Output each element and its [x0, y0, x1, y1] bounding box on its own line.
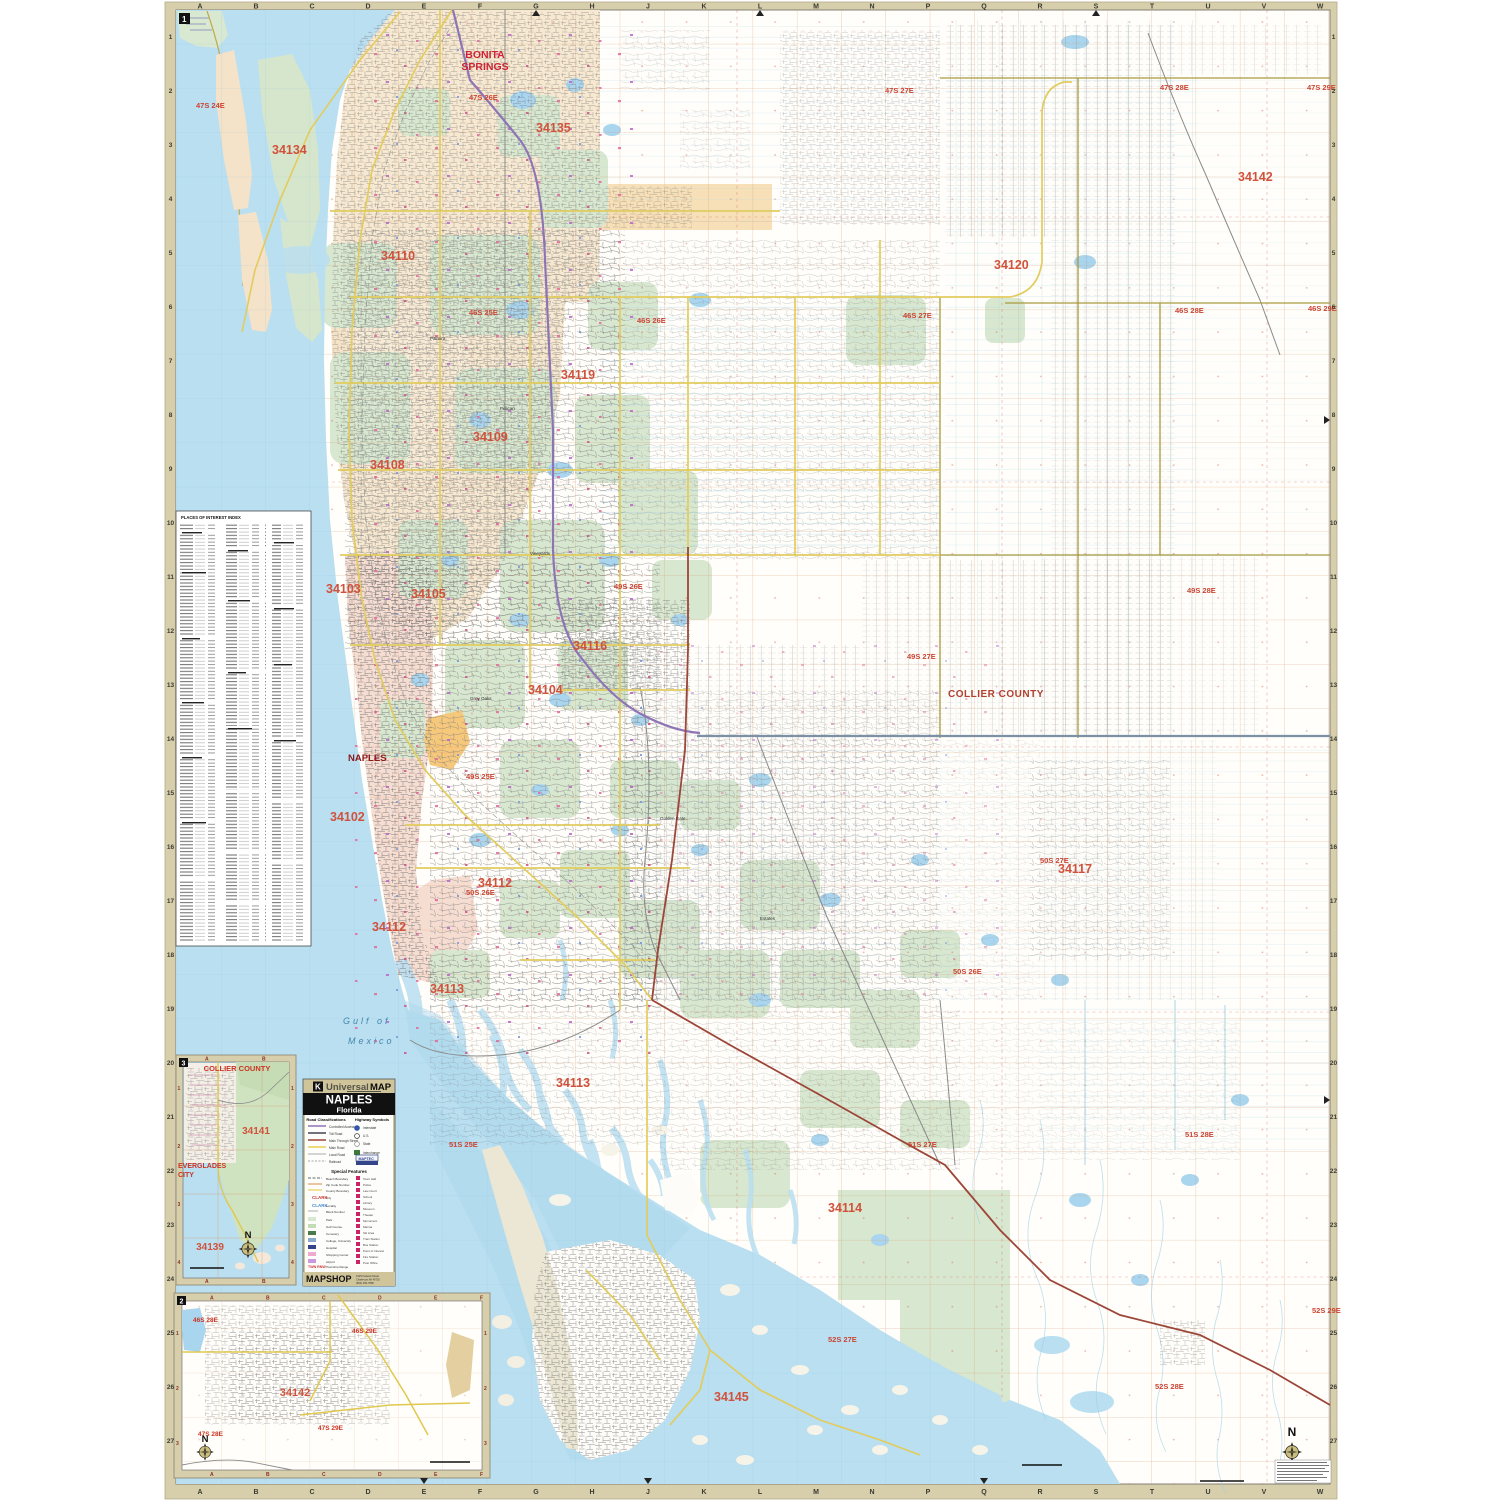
- svg-text:P: P: [926, 4, 931, 11]
- svg-text:College, University: College, University: [326, 1239, 352, 1243]
- svg-text:Golden Gate: Golden Gate: [660, 816, 686, 821]
- svg-text:Pelican: Pelican: [500, 406, 515, 411]
- svg-text:G: G: [533, 1489, 539, 1496]
- svg-text:17: 17: [1330, 898, 1338, 905]
- svg-text:27: 27: [167, 1438, 175, 1445]
- svg-text:34141: 34141: [242, 1126, 270, 1137]
- svg-text:D: D: [378, 1472, 382, 1478]
- svg-text:2: 2: [169, 88, 173, 95]
- svg-text:V: V: [1262, 4, 1267, 11]
- svg-text:47S 28E: 47S 28E: [1160, 83, 1189, 92]
- svg-text:12: 12: [1330, 628, 1338, 635]
- svg-text:34145: 34145: [714, 1390, 749, 1404]
- svg-text:N: N: [869, 4, 874, 11]
- svg-text:34135: 34135: [536, 121, 571, 135]
- svg-text:3: 3: [176, 1441, 179, 1447]
- svg-text:COLLIER COUNTY: COLLIER COUNTY: [948, 689, 1044, 700]
- svg-text:3: 3: [291, 1202, 294, 1208]
- svg-text:2: 2: [176, 1386, 179, 1392]
- svg-text:12: 12: [167, 628, 175, 635]
- svg-text:1: 1: [176, 1331, 179, 1337]
- svg-text:26: 26: [167, 1384, 175, 1391]
- svg-text:Interchange: Interchange: [363, 1151, 380, 1155]
- svg-text:52S 29E: 52S 29E: [1312, 1306, 1341, 1315]
- svg-text:W: W: [1317, 1489, 1324, 1496]
- svg-text:Controlled Access: Controlled Access: [329, 1125, 355, 1129]
- svg-text:20: 20: [1330, 1060, 1338, 1067]
- svg-text:2: 2: [484, 1386, 487, 1392]
- svg-text:B: B: [253, 1489, 258, 1496]
- svg-text:5: 5: [169, 250, 173, 257]
- svg-text:School: School: [363, 1195, 373, 1199]
- svg-text:Grey Oaks: Grey Oaks: [470, 696, 492, 701]
- svg-text:Block Number: Block Number: [326, 1210, 345, 1214]
- svg-text:Police: Police: [363, 1183, 372, 1187]
- svg-text:27: 27: [1330, 1438, 1338, 1445]
- svg-text:U.S.: U.S.: [363, 1134, 369, 1138]
- svg-text:3: 3: [169, 142, 173, 149]
- svg-text:EVERGLADES: EVERGLADES: [178, 1163, 227, 1170]
- svg-text:N: N: [1288, 1425, 1297, 1439]
- svg-text:24: 24: [167, 1276, 175, 1283]
- svg-text:F: F: [478, 4, 483, 11]
- svg-text:46S 28E: 46S 28E: [1175, 306, 1204, 315]
- svg-text:1: 1: [182, 15, 187, 24]
- svg-text:14: 14: [167, 736, 175, 743]
- svg-text:F: F: [480, 1472, 483, 1478]
- svg-text:B: B: [262, 1057, 266, 1063]
- svg-text:Interstate: Interstate: [363, 1126, 377, 1130]
- svg-text:Park: Park: [326, 1218, 333, 1222]
- svg-text:20: 20: [167, 1060, 175, 1067]
- svg-text:Gulf of: Gulf of: [343, 1016, 391, 1026]
- svg-text:2: 2: [291, 1144, 294, 1150]
- svg-text:Special Features: Special Features: [331, 1169, 367, 1174]
- svg-text:N: N: [245, 1230, 252, 1241]
- svg-text:4: 4: [291, 1260, 294, 1266]
- svg-text:49S 26E: 49S 26E: [614, 582, 643, 591]
- svg-text:Post Office: Post Office: [363, 1261, 378, 1265]
- svg-text:A: A: [197, 4, 202, 11]
- svg-text:Toll Road: Toll Road: [329, 1132, 343, 1136]
- svg-text:3: 3: [182, 1061, 186, 1068]
- svg-text:C: C: [322, 1296, 326, 1302]
- svg-text:10: 10: [1330, 520, 1338, 527]
- svg-text:1: 1: [178, 1086, 181, 1092]
- svg-text:Marina: Marina: [363, 1225, 373, 1229]
- svg-text:50S 27E: 50S 27E: [1040, 856, 1069, 865]
- svg-text:Main Road: Main Road: [329, 1146, 345, 1150]
- svg-text:11: 11: [167, 574, 174, 581]
- svg-text:Road Classifications: Road Classifications: [306, 1117, 346, 1122]
- svg-text:15: 15: [1330, 790, 1338, 797]
- svg-text:Q: Q: [981, 1489, 987, 1496]
- svg-text:Locality: Locality: [326, 1204, 337, 1208]
- svg-text:47S 26E: 47S 26E: [469, 93, 498, 102]
- svg-text:A: A: [210, 1472, 214, 1478]
- svg-text:N: N: [202, 1434, 209, 1445]
- svg-text:K: K: [701, 1489, 706, 1496]
- svg-text:13: 13: [167, 682, 175, 689]
- svg-text:NAPLES: NAPLES: [348, 753, 387, 764]
- svg-text:1: 1: [484, 1331, 487, 1337]
- svg-text:B: B: [262, 1279, 266, 1285]
- svg-text:3: 3: [1332, 142, 1336, 149]
- svg-text:A: A: [205, 1279, 209, 1285]
- svg-text:J: J: [646, 1489, 650, 1496]
- svg-text:50S 26E: 50S 26E: [466, 888, 495, 897]
- svg-text:Highway Symbols: Highway Symbols: [355, 1117, 390, 1122]
- svg-text:Theater: Theater: [363, 1213, 373, 1217]
- svg-text:46S 28E: 46S 28E: [193, 1317, 219, 1324]
- svg-text:23: 23: [167, 1222, 175, 1229]
- svg-text:6: 6: [169, 304, 173, 311]
- svg-text:51S 28E: 51S 28E: [1185, 1130, 1214, 1139]
- svg-text:W: W: [1317, 4, 1324, 11]
- svg-text:34108: 34108: [370, 458, 405, 472]
- svg-text:47S 24E: 47S 24E: [196, 101, 225, 110]
- svg-text:46S 26E: 46S 26E: [637, 316, 666, 325]
- svg-text:MAPTEC: MAPTEC: [359, 1157, 375, 1161]
- svg-text:Township Range: Township Range: [326, 1265, 349, 1269]
- svg-text:M: M: [813, 1489, 819, 1496]
- svg-text:34113: 34113: [556, 1076, 590, 1090]
- svg-text:16: 16: [167, 844, 175, 851]
- svg-text:11: 11: [1330, 574, 1337, 581]
- svg-text:4: 4: [1332, 196, 1336, 203]
- svg-text:25: 25: [167, 1330, 175, 1337]
- svg-text:K: K: [315, 1083, 321, 1092]
- svg-text:SPRINGS: SPRINGS: [461, 61, 508, 73]
- svg-text:21: 21: [167, 1114, 175, 1121]
- svg-text:P: P: [926, 1489, 931, 1496]
- svg-text:18: 18: [167, 952, 175, 959]
- svg-text:E: E: [422, 4, 427, 11]
- svg-text:52S 28E: 52S 28E: [1155, 1382, 1184, 1391]
- svg-text:7: 7: [169, 358, 173, 365]
- svg-text:9: 9: [169, 466, 173, 473]
- svg-text:V: V: [1262, 1489, 1267, 1496]
- svg-text:Golf Course: Golf Course: [326, 1225, 342, 1229]
- svg-text:D: D: [365, 4, 370, 11]
- svg-text:S: S: [1094, 1489, 1099, 1496]
- svg-text:H: H: [589, 4, 594, 11]
- svg-text:S: S: [1094, 4, 1099, 11]
- svg-text:3: 3: [484, 1441, 487, 1447]
- svg-text:Mexico: Mexico: [348, 1036, 395, 1046]
- svg-text:Q: Q: [981, 4, 987, 11]
- svg-text:Hospital: Hospital: [326, 1246, 337, 1250]
- svg-text:49S 27E: 49S 27E: [907, 652, 936, 661]
- svg-text:5: 5: [1332, 250, 1336, 257]
- svg-text:E: E: [422, 1489, 427, 1496]
- svg-text:Shopping Center: Shopping Center: [326, 1253, 349, 1257]
- svg-text:H: H: [589, 1489, 594, 1496]
- svg-text:(800) 456-7898: (800) 456-7898: [356, 1281, 374, 1285]
- svg-text:M: M: [813, 4, 819, 11]
- svg-text:L: L: [758, 1489, 763, 1496]
- svg-text:1: 1: [1332, 34, 1336, 41]
- svg-text:18: 18: [1330, 952, 1338, 959]
- svg-text:19: 19: [1330, 1006, 1338, 1013]
- svg-text:10: 10: [167, 520, 175, 527]
- svg-text:34139: 34139: [196, 1242, 224, 1253]
- svg-text:47S 29E: 47S 29E: [318, 1425, 344, 1432]
- svg-text:State: State: [363, 1142, 371, 1146]
- svg-text:49S 28E: 49S 28E: [1187, 586, 1216, 595]
- svg-text:15: 15: [167, 790, 175, 797]
- svg-text:34114: 34114: [828, 1201, 862, 1215]
- svg-text:TWN RNW: TWN RNW: [308, 1265, 326, 1269]
- svg-text:34119: 34119: [561, 368, 595, 382]
- svg-text:Library: Library: [363, 1201, 373, 1205]
- svg-text:9: 9: [1332, 466, 1336, 473]
- svg-text:D: D: [365, 1489, 370, 1496]
- svg-text:34110: 34110: [381, 249, 415, 263]
- svg-text:Charlevoix MI 49720: Charlevoix MI 49720: [356, 1278, 380, 1282]
- svg-text:51S 27E: 51S 27E: [908, 1140, 937, 1149]
- svg-text:34112: 34112: [372, 920, 406, 934]
- svg-text:Monument: Monument: [363, 1219, 377, 1223]
- svg-text:4: 4: [178, 1260, 181, 1266]
- svg-text:A: A: [197, 1489, 202, 1496]
- svg-text:Main Through Street: Main Through Street: [329, 1139, 358, 1143]
- svg-text:34113: 34113: [430, 982, 464, 996]
- svg-text:Fire Station: Fire Station: [363, 1255, 379, 1259]
- svg-text:34103: 34103: [326, 582, 361, 596]
- svg-text:CITY: CITY: [178, 1172, 194, 1179]
- svg-text:T: T: [1150, 4, 1155, 11]
- svg-text:17: 17: [167, 898, 175, 905]
- svg-text:2: 2: [180, 1299, 184, 1306]
- svg-text:34142: 34142: [280, 1387, 311, 1399]
- svg-text:34105: 34105: [411, 587, 446, 601]
- svg-text:BONITA: BONITA: [465, 49, 505, 61]
- svg-text:Ski Area: Ski Area: [363, 1231, 375, 1235]
- svg-text:COLLIER COUNTY: COLLIER COUNTY: [204, 1064, 271, 1073]
- svg-text:8: 8: [169, 412, 173, 419]
- svg-text:Local Road: Local Road: [329, 1153, 345, 1157]
- svg-text:County Boundary: County Boundary: [326, 1189, 350, 1193]
- svg-text:4: 4: [169, 196, 173, 203]
- svg-text:24: 24: [1330, 1276, 1338, 1283]
- svg-text:51S 25E: 51S 25E: [449, 1140, 478, 1149]
- svg-text:23: 23: [1330, 1222, 1338, 1229]
- svg-text:3: 3: [178, 1202, 181, 1208]
- svg-text:Cemetery: Cemetery: [326, 1232, 340, 1236]
- svg-text:F: F: [480, 1296, 483, 1302]
- svg-text:22: 22: [167, 1168, 175, 1175]
- svg-text:8: 8: [1332, 412, 1336, 419]
- svg-text:Beach Boundary: Beach Boundary: [326, 1177, 349, 1181]
- svg-text:MAPSHOP: MAPSHOP: [306, 1274, 352, 1284]
- svg-text:21: 21: [1330, 1114, 1338, 1121]
- svg-text:14: 14: [1330, 736, 1338, 743]
- svg-text:34102: 34102: [330, 810, 365, 824]
- svg-text:22: 22: [1330, 1168, 1338, 1175]
- svg-text:13: 13: [1330, 682, 1338, 689]
- svg-text:1: 1: [291, 1086, 294, 1092]
- svg-text:Zip Code Number: Zip Code Number: [326, 1183, 350, 1187]
- svg-text:46S 27E: 46S 27E: [903, 311, 932, 320]
- svg-text:1625 Federal Street: 1625 Federal Street: [356, 1274, 379, 1278]
- svg-text:PLACES OF INTEREST INDEX: PLACES OF INTEREST INDEX: [181, 515, 241, 520]
- svg-text:City: City: [326, 1196, 332, 1200]
- svg-text:B: B: [266, 1472, 270, 1478]
- svg-text:A: A: [210, 1296, 214, 1302]
- svg-text:34142: 34142: [1238, 170, 1273, 184]
- svg-text:Train Station: Train Station: [363, 1237, 380, 1241]
- svg-text:N: N: [869, 1489, 874, 1496]
- svg-text:46S 25E: 46S 25E: [469, 308, 498, 317]
- svg-text:T: T: [1150, 1489, 1155, 1496]
- svg-text:D: D: [378, 1296, 382, 1302]
- svg-text:34104: 34104: [528, 683, 563, 697]
- svg-text:J: J: [646, 4, 650, 11]
- svg-text:Florida: Florida: [336, 1106, 362, 1115]
- svg-text:1: 1: [169, 34, 173, 41]
- svg-text:50S 26E: 50S 26E: [953, 967, 982, 976]
- svg-text:16: 16: [1330, 844, 1338, 851]
- svg-text:Palmira: Palmira: [430, 336, 446, 341]
- svg-text:Museum: Museum: [363, 1207, 375, 1211]
- svg-text:A: A: [205, 1057, 209, 1063]
- svg-text:G: G: [533, 4, 539, 11]
- svg-text:Bus Station: Bus Station: [363, 1243, 379, 1247]
- svg-text:R: R: [1037, 4, 1042, 11]
- svg-text:F: F: [478, 1489, 483, 1496]
- svg-text:7: 7: [1332, 358, 1336, 365]
- svg-text:47S 27E: 47S 27E: [885, 86, 914, 95]
- svg-text:Vineyards: Vineyards: [530, 551, 551, 556]
- svg-text:46S 29E: 46S 29E: [352, 1328, 378, 1335]
- svg-text:Law Court: Law Court: [363, 1189, 377, 1193]
- svg-text:34116: 34116: [573, 639, 607, 653]
- svg-text:Railroad: Railroad: [329, 1160, 341, 1164]
- svg-text:C: C: [309, 1489, 314, 1496]
- svg-text:34120: 34120: [994, 258, 1029, 272]
- svg-text:U: U: [1205, 4, 1210, 11]
- svg-text:K: K: [701, 4, 706, 11]
- svg-text:Town Hall: Town Hall: [363, 1177, 376, 1181]
- svg-text:L: L: [758, 4, 763, 11]
- svg-text:Point of Interest: Point of Interest: [363, 1249, 384, 1253]
- svg-text:2: 2: [1332, 88, 1336, 95]
- svg-text:49S 25E: 49S 25E: [466, 772, 495, 781]
- svg-text:6: 6: [1332, 304, 1336, 311]
- svg-text:B: B: [266, 1296, 270, 1302]
- svg-text:Airport: Airport: [326, 1260, 335, 1264]
- svg-text:R: R: [1037, 1489, 1042, 1496]
- svg-text:B: B: [253, 4, 258, 11]
- svg-text:52S 27E: 52S 27E: [828, 1335, 857, 1344]
- svg-text:34134: 34134: [272, 143, 307, 157]
- svg-text:Estates: Estates: [760, 916, 776, 921]
- svg-text:U: U: [1205, 1489, 1210, 1496]
- svg-text:25: 25: [1330, 1330, 1338, 1337]
- svg-text:C: C: [309, 4, 314, 11]
- svg-text:C: C: [322, 1472, 326, 1478]
- svg-text:2: 2: [178, 1144, 181, 1150]
- svg-text:19: 19: [167, 1006, 175, 1013]
- svg-text:26: 26: [1330, 1384, 1338, 1391]
- svg-text:34109: 34109: [473, 430, 508, 444]
